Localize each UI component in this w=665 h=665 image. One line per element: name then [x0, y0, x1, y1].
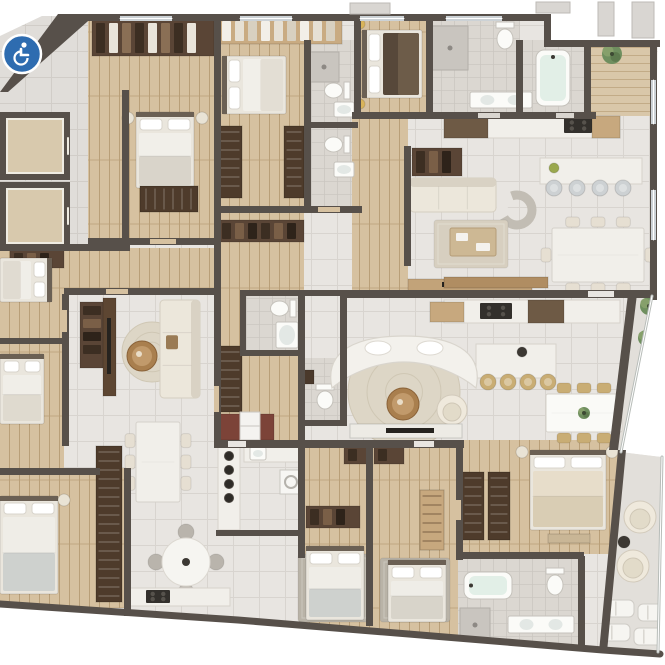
shape: [338, 553, 360, 564]
door-opening: [478, 113, 500, 118]
shape: [148, 23, 157, 53]
shape: [222, 21, 231, 41]
shape: [484, 378, 492, 386]
shape: [47, 258, 52, 302]
shape: [570, 126, 574, 130]
shape: [571, 457, 602, 468]
shape: [570, 120, 574, 124]
shape: [140, 119, 162, 130]
shape: [261, 21, 270, 41]
nightstand: [516, 446, 528, 458]
shape: [313, 21, 322, 41]
shape: [365, 341, 391, 355]
shape: [182, 558, 190, 566]
shape: [83, 332, 101, 341]
shape: [549, 619, 563, 630]
shape: [0, 496, 58, 501]
shape: [122, 23, 131, 53]
kitchen-cabinet: [592, 116, 620, 138]
shape: [161, 23, 170, 53]
shape: [378, 449, 387, 461]
exterior-ledge: [598, 2, 614, 36]
shape: [287, 21, 296, 41]
shape: [348, 449, 357, 461]
wall: [298, 420, 346, 426]
wall: [404, 146, 411, 266]
shape: [322, 65, 327, 70]
shape: [300, 21, 309, 41]
shape: [469, 584, 473, 588]
shape: [534, 457, 565, 468]
toilet: [344, 136, 350, 153]
coffee-table: [450, 228, 496, 256]
shape: [260, 59, 283, 111]
shape: [174, 23, 183, 53]
toilet: [496, 22, 514, 28]
shape: [397, 399, 403, 405]
wall: [0, 338, 66, 344]
chair: [597, 433, 611, 443]
shape: [540, 55, 566, 101]
shape: [271, 301, 289, 316]
shape: [420, 567, 442, 578]
shape: [0, 354, 44, 359]
shape: [362, 30, 367, 98]
wall: [516, 40, 523, 116]
shape: [501, 306, 505, 310]
shape: [337, 165, 351, 174]
shape: [533, 496, 603, 527]
shape: [473, 623, 478, 628]
shape: [645, 336, 653, 344]
shape: [551, 55, 555, 59]
shape: [274, 223, 283, 239]
nightstand: [58, 494, 70, 506]
wall: [64, 288, 216, 295]
chair: [577, 433, 591, 443]
shape: [337, 105, 351, 114]
shape: [442, 151, 451, 173]
shape: [388, 560, 446, 565]
shape: [83, 319, 101, 328]
shape: [3, 553, 55, 591]
range-burners: [225, 466, 234, 475]
chair: [557, 433, 571, 443]
floor-corridor-1: [352, 112, 408, 292]
shape: [109, 23, 118, 53]
wardrobe: [218, 126, 242, 198]
wall: [650, 40, 657, 300]
shape: [487, 312, 491, 316]
shape: [132, 346, 152, 366]
wardrobe: [140, 186, 198, 212]
shape: [151, 597, 155, 601]
chair: [591, 217, 605, 227]
kitchen-island-2: [476, 344, 556, 378]
wall: [216, 530, 304, 536]
shape: [336, 509, 345, 525]
kitchen-cabinet: [444, 116, 488, 138]
range-burners: [225, 452, 234, 461]
shape: [544, 378, 552, 386]
shape: [32, 503, 54, 514]
shape: [480, 95, 494, 105]
shape: [501, 312, 505, 316]
sideboard: [430, 302, 464, 322]
shape: [261, 223, 270, 239]
shape: [7, 189, 63, 243]
shape: [166, 335, 178, 349]
wall: [124, 468, 131, 616]
wardrobe: [284, 126, 304, 198]
shape: [596, 184, 604, 192]
shape: [456, 233, 468, 241]
shape: [34, 282, 45, 297]
shape: [4, 361, 19, 372]
shape: [253, 450, 263, 457]
door-opening: [150, 239, 176, 244]
shape: [25, 361, 40, 372]
shape: [519, 619, 533, 630]
shape: [135, 23, 144, 53]
shape: [310, 553, 332, 564]
kitchen-counter-3: [126, 588, 230, 606]
shape: [187, 23, 196, 53]
chair: [125, 455, 135, 469]
shape: [83, 345, 101, 354]
range-burners: [225, 494, 234, 503]
chair: [577, 383, 591, 393]
shape: [429, 151, 438, 173]
shape: [476, 243, 490, 251]
door-opening: [214, 386, 219, 412]
shape: [96, 23, 105, 53]
door-opening: [106, 289, 128, 294]
cooktop: [146, 590, 170, 603]
shape: [248, 21, 257, 41]
wall: [298, 446, 305, 558]
shape: [369, 34, 380, 61]
shape: [392, 393, 414, 415]
nightstand: [196, 112, 208, 124]
shape: [7, 119, 63, 173]
shape: [497, 29, 513, 49]
toilet: [546, 568, 564, 574]
wall: [340, 290, 347, 426]
tv: [107, 318, 111, 374]
door-opening: [456, 500, 461, 520]
wall: [240, 290, 346, 296]
wall: [544, 40, 660, 47]
bowl: [549, 163, 559, 173]
wall: [354, 14, 361, 118]
shape: [448, 46, 453, 51]
wall: [240, 350, 302, 356]
cooktop: [480, 303, 512, 319]
shape: [582, 120, 586, 124]
wall: [426, 14, 433, 116]
door-opening: [228, 441, 246, 447]
shape: [151, 592, 155, 596]
walkin-wardrobe: [462, 472, 484, 540]
chair: [557, 383, 571, 393]
toilet: [290, 300, 296, 317]
wall: [0, 468, 100, 475]
shape: [582, 411, 586, 415]
shape: [392, 567, 414, 578]
chair: [541, 248, 551, 262]
shape: [279, 325, 295, 345]
shape: [547, 575, 563, 595]
wall: [240, 294, 246, 354]
sun-lounger: [638, 604, 665, 621]
exterior-ledge: [350, 3, 390, 14]
wheelchair-accessible-icon: [3, 35, 41, 73]
shape: [410, 178, 496, 187]
wall: [584, 40, 591, 118]
chair: [125, 434, 135, 448]
shape: [530, 450, 606, 455]
wall: [578, 556, 585, 650]
wall: [214, 14, 221, 208]
walkin-wardrobe: [488, 472, 510, 540]
shape: [222, 56, 227, 114]
shape: [391, 596, 443, 619]
shape: [161, 592, 165, 596]
shape: [274, 21, 283, 41]
door-opening: [556, 113, 574, 118]
chair: [616, 217, 630, 227]
wood-shelf: [444, 277, 548, 288]
double-sink: [508, 616, 574, 633]
shape: [317, 391, 333, 409]
shape: [136, 351, 142, 357]
shape: [610, 52, 614, 56]
wall: [304, 122, 358, 128]
chair: [566, 217, 580, 227]
shape: [34, 262, 45, 277]
side-table: [618, 536, 630, 548]
door-opening: [588, 291, 614, 297]
shape: [325, 137, 343, 152]
shape: [3, 395, 41, 421]
range-burners: [225, 480, 234, 489]
floorplan-image: [0, 0, 665, 665]
wall: [456, 552, 584, 559]
shape: [550, 184, 558, 192]
chair: [181, 476, 191, 490]
shape: [524, 378, 532, 386]
shape: [136, 112, 194, 117]
exterior-ledge: [536, 2, 570, 13]
shape: [191, 300, 200, 398]
tv: [386, 428, 434, 433]
shape: [229, 60, 240, 82]
cooktop: [564, 118, 592, 133]
shape: [235, 223, 244, 239]
shape: [139, 156, 191, 185]
shape: [4, 503, 26, 514]
shape: [229, 87, 240, 109]
door-opening: [414, 441, 434, 447]
wall: [0, 244, 130, 251]
shape: [582, 126, 586, 130]
island-sink: [517, 347, 527, 357]
shape: [161, 597, 165, 601]
door-opening: [318, 207, 340, 212]
door-opening: [62, 310, 67, 332]
shape: [487, 306, 491, 310]
shape: [630, 509, 650, 529]
shape: [326, 21, 335, 41]
wall: [366, 446, 373, 626]
shape: [398, 33, 419, 95]
kitchen-cabinet: [528, 300, 564, 323]
shape: [469, 576, 507, 595]
shape: [504, 378, 512, 386]
wheelchair-head: [21, 42, 26, 47]
shape: [369, 66, 380, 93]
shape: [619, 184, 627, 192]
shape: [323, 509, 332, 525]
chair: [181, 455, 191, 469]
shape: [623, 558, 643, 578]
floorplan-svg: [0, 0, 665, 665]
shape: [310, 509, 319, 525]
shape: [309, 589, 361, 617]
shape: [306, 546, 364, 551]
exterior-ledge: [632, 2, 654, 38]
shape: [416, 151, 425, 173]
shape: [222, 223, 231, 239]
shape: [573, 184, 581, 192]
shape: [325, 83, 343, 98]
chair: [181, 434, 191, 448]
bed-bench: [548, 534, 590, 543]
toilet: [344, 82, 350, 99]
shape: [3, 261, 21, 299]
shape: [235, 21, 244, 41]
shape: [168, 119, 190, 130]
shape: [248, 223, 257, 239]
shape: [417, 341, 443, 355]
shape: [287, 223, 296, 239]
wall: [122, 90, 129, 248]
chair: [597, 383, 611, 393]
shape: [83, 306, 101, 315]
shape: [443, 403, 461, 421]
